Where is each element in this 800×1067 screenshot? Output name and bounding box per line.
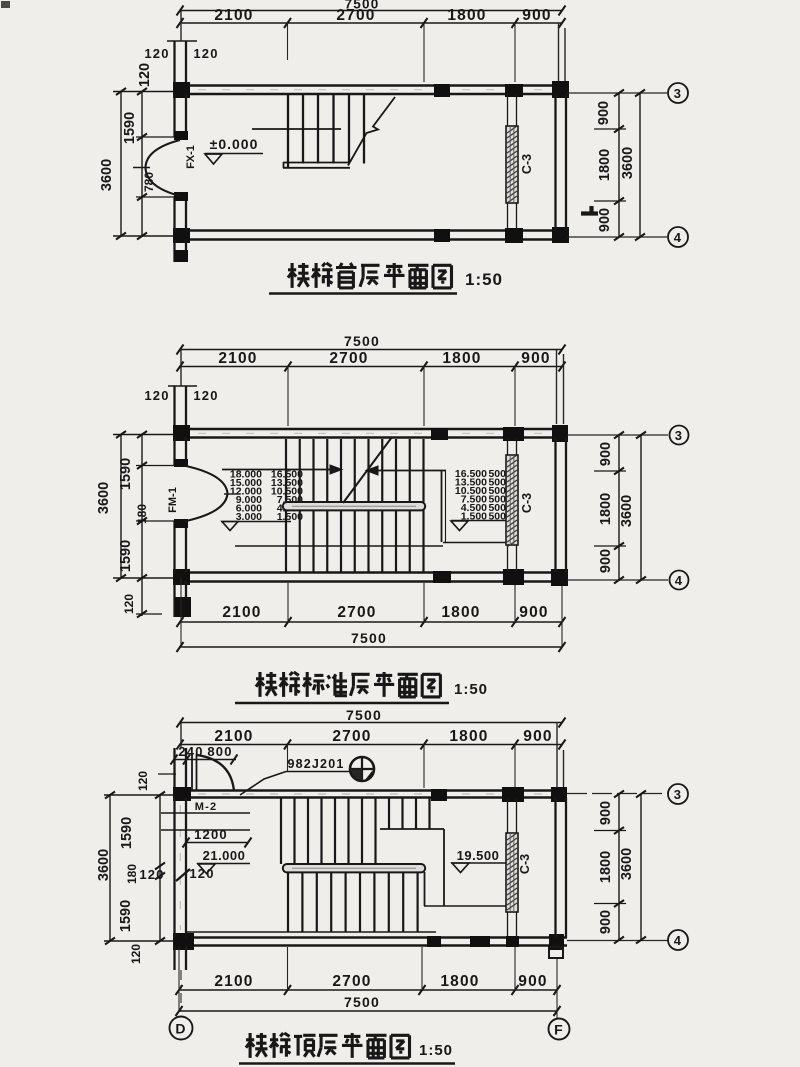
svg-text:3600: 3600: [96, 482, 112, 514]
svg-text:900: 900: [521, 350, 550, 367]
svg-text:F: F: [554, 1022, 564, 1038]
svg-text:D: D: [175, 1021, 186, 1037]
svg-text:3600: 3600: [619, 848, 635, 880]
svg-text:120: 120: [189, 866, 214, 881]
svg-text:900: 900: [598, 910, 614, 934]
svg-text:1800: 1800: [440, 973, 479, 990]
svg-text:2700: 2700: [336, 7, 375, 24]
svg-text:900: 900: [597, 208, 613, 232]
svg-text:FM-1: FM-1: [167, 487, 179, 513]
svg-text:FX-1: FX-1: [185, 145, 197, 169]
svg-text:120: 120: [137, 63, 153, 87]
svg-text:7500: 7500: [346, 707, 382, 723]
svg-text:1590: 1590: [119, 817, 135, 849]
svg-text:900: 900: [523, 728, 552, 745]
svg-text:900: 900: [518, 973, 547, 990]
svg-text:2100: 2100: [218, 350, 257, 367]
svg-text:7500: 7500: [351, 630, 387, 646]
svg-text:C-3: C-3: [520, 154, 534, 174]
svg-text:4: 4: [674, 933, 682, 948]
svg-text:120: 120: [144, 388, 169, 403]
svg-text:2700: 2700: [329, 350, 368, 367]
svg-text:120: 120: [144, 46, 169, 61]
svg-text:3600: 3600: [620, 147, 636, 179]
svg-text:3600: 3600: [99, 159, 115, 191]
svg-text:1590: 1590: [118, 458, 134, 490]
svg-text:1590: 1590: [118, 540, 134, 572]
svg-text:800: 800: [207, 744, 232, 759]
svg-text:180: 180: [135, 504, 149, 524]
svg-text:1:50: 1:50: [419, 1042, 453, 1059]
svg-text:120: 120: [129, 944, 143, 964]
svg-text:4: 4: [675, 573, 683, 588]
svg-text:1200: 1200: [194, 827, 228, 842]
svg-text:2100: 2100: [214, 728, 253, 745]
svg-text:982J201: 982J201: [287, 757, 344, 771]
svg-text:240: 240: [178, 744, 203, 759]
svg-text:2100: 2100: [214, 973, 253, 990]
svg-text:1800: 1800: [598, 493, 614, 525]
svg-text:2700: 2700: [332, 973, 371, 990]
svg-text:900: 900: [598, 801, 614, 825]
svg-text:900: 900: [522, 7, 551, 24]
svg-text:1800: 1800: [598, 851, 614, 883]
svg-text:1800: 1800: [442, 350, 481, 367]
svg-text:3: 3: [674, 787, 682, 802]
svg-text:3600: 3600: [619, 495, 635, 527]
svg-text:1590: 1590: [122, 112, 138, 144]
svg-text:C-3: C-3: [518, 854, 532, 874]
svg-text:180: 180: [125, 864, 139, 884]
svg-text:780: 780: [142, 172, 156, 192]
svg-text:4: 4: [674, 230, 682, 245]
svg-text:900: 900: [598, 442, 614, 466]
svg-text:3: 3: [675, 428, 683, 443]
svg-text:2700: 2700: [332, 728, 371, 745]
svg-text:1:50: 1:50: [465, 270, 503, 289]
svg-text:C-3: C-3: [520, 493, 534, 513]
svg-text:120: 120: [122, 594, 136, 614]
svg-text:19.500: 19.500: [457, 848, 500, 863]
svg-text:120: 120: [193, 388, 218, 403]
svg-text:120: 120: [136, 771, 150, 791]
svg-text:3600: 3600: [96, 849, 112, 881]
svg-text:±0.000: ±0.000: [210, 136, 259, 152]
svg-text:1800: 1800: [441, 604, 480, 621]
svg-text:1590: 1590: [118, 900, 134, 932]
svg-text:1800: 1800: [449, 728, 488, 745]
svg-text:900: 900: [598, 549, 614, 573]
svg-text:2700: 2700: [337, 604, 376, 621]
svg-text:2100: 2100: [214, 7, 253, 24]
svg-text:1800: 1800: [447, 7, 486, 24]
svg-text:3: 3: [674, 86, 682, 101]
svg-text:900: 900: [519, 604, 548, 621]
svg-text:M-2: M-2: [195, 801, 218, 813]
svg-text:21.000: 21.000: [203, 848, 246, 863]
svg-text:1800: 1800: [597, 149, 613, 181]
svg-text:900: 900: [596, 101, 612, 125]
svg-text:7500: 7500: [344, 994, 380, 1010]
svg-text:2100: 2100: [222, 604, 261, 621]
svg-text:1:50: 1:50: [454, 681, 488, 698]
svg-text:7500: 7500: [344, 333, 380, 349]
svg-text:120: 120: [193, 46, 218, 61]
